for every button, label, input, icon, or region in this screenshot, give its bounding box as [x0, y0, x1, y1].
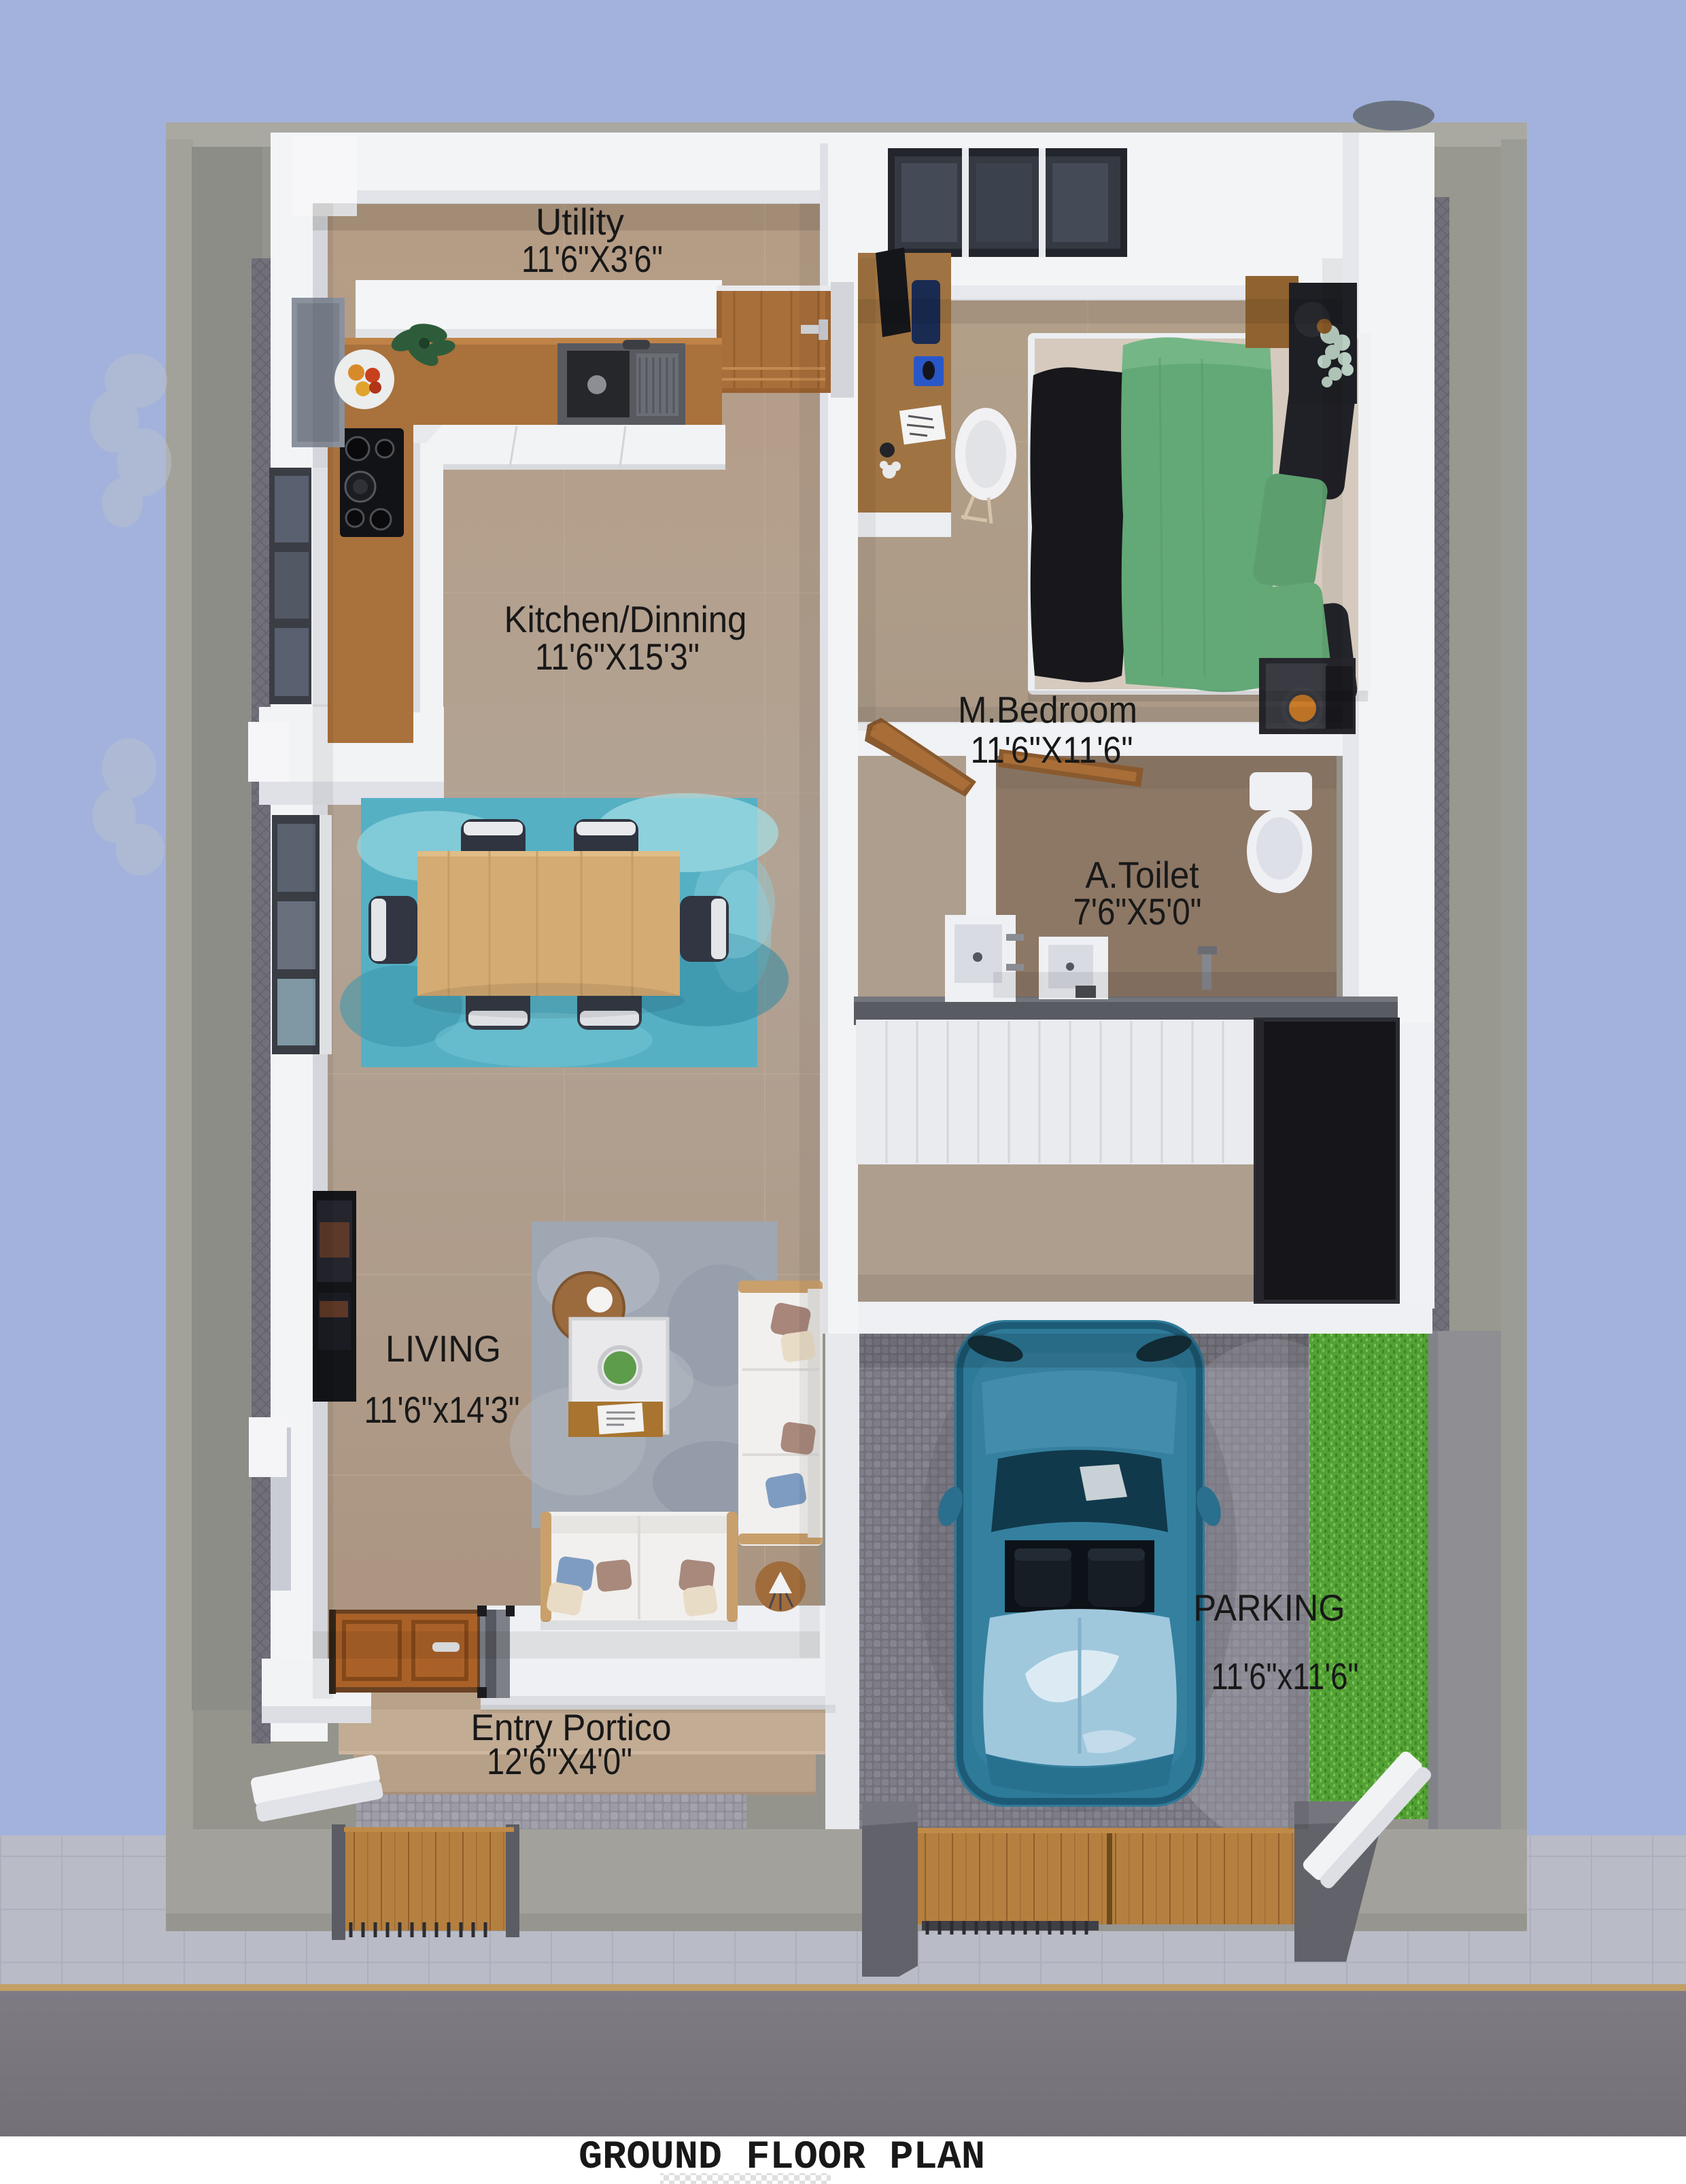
svg-text:A.Toilet: A.Toilet — [1086, 854, 1199, 896]
svg-text:11'6"x14'3": 11'6"x14'3" — [364, 1389, 520, 1431]
svg-text:11'6"X3'6": 11'6"X3'6" — [521, 238, 663, 280]
svg-text:Kitchen/Dinning: Kitchen/Dinning — [504, 598, 747, 640]
svg-text:M.Bedroom: M.Bedroom — [958, 689, 1137, 731]
svg-text:7'6"X5'0": 7'6"X5'0" — [1073, 890, 1202, 933]
svg-text:12'6"X4'0": 12'6"X4'0" — [487, 1740, 632, 1782]
svg-text:PARKING: PARKING — [1194, 1587, 1345, 1629]
svg-text:11'6"x11'6": 11'6"x11'6" — [1211, 1655, 1359, 1697]
svg-text:11'6"X11'6": 11'6"X11'6" — [971, 729, 1133, 771]
svg-text:LIVING: LIVING — [385, 1328, 501, 1370]
svg-text:11'6"X15'3": 11'6"X15'3" — [535, 636, 700, 678]
svg-text:Utility: Utility — [536, 201, 624, 243]
